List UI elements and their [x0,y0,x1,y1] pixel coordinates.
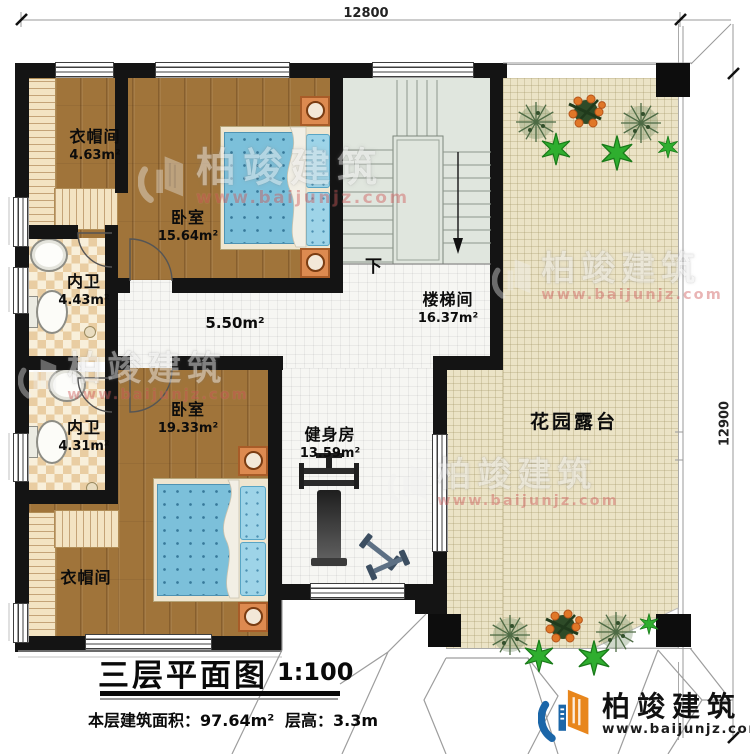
dimension-top: 12800 [326,6,406,21]
terrace-parapet-bottom [446,648,692,662]
nightstand [238,446,268,476]
wall [268,360,282,650]
wall [172,356,283,370]
dimension-right: 12900 [718,396,733,452]
room-label-stairwell: 楼梯间 16.37m² [418,290,478,328]
wardrobe-closet-bottom-left [28,512,56,638]
nightstand [238,602,268,632]
room-label-gym: 健身房 13.59m² [300,425,360,463]
floor-terrace [503,78,678,648]
wall [330,63,343,293]
weight-bench-icon [317,490,341,560]
wall [490,63,503,369]
window [372,62,474,78]
room-label-bath-top: 内卫 4.43m² [58,272,109,310]
title-underline-thin [100,698,338,700]
room-label-hall-area: 5.50m² [205,314,264,334]
floor-height-text: 层高：3.3m [285,707,378,731]
company-logo-icon [538,686,594,742]
company-website: www.baijunjz.com [602,723,750,737]
company-name: 柏竣建筑 [602,691,750,723]
weight-bench-icon [354,463,359,489]
nightstand [300,248,330,278]
window [85,634,212,650]
room-label-terrace: 花园露台 [530,410,618,435]
room-label-bedroom-bottom: 卧室 19.33m² [158,400,218,438]
floor-drain-icon [84,326,96,338]
floor-plan: 柏竣建筑 www.baijunjz.com 柏竣建筑 www.baijunjz.… [0,0,750,754]
floor-stairwell [343,78,491,264]
window [13,267,29,314]
wall [15,356,78,370]
wardrobe-closet-top-left [28,78,56,230]
room-label-closet-top: 衣帽间 4.63m² [69,127,120,165]
company-logo: 柏竣建筑 www.baijunjz.com [538,686,750,742]
window [13,197,29,247]
wall [112,356,130,370]
room-label-bedroom-top: 卧室 15.64m² [158,208,218,246]
bed-bottom-mattress [157,484,235,596]
weight-bench-icon [311,558,347,566]
terrace-door-window [432,434,448,552]
weight-bench-icon [299,463,304,489]
title-underline [100,691,340,696]
wardrobe-closet-top-bottom [54,188,118,230]
bed-bottom-pillow [240,542,266,596]
wall [172,278,343,293]
wall [433,550,447,600]
stairs-direction-label: 下 [365,256,383,278]
bed-top-pillow [306,134,330,188]
terrace-parapet-right [678,24,734,740]
window [55,62,114,78]
page-title: 三层平面图 [98,650,268,695]
wardrobe-closet-bottom-top [54,510,119,548]
lamp-icon [306,101,325,120]
wall [15,490,117,504]
window [310,583,405,599]
window [155,62,290,78]
wall [115,278,130,293]
window [13,433,29,482]
weight-bench-icon [302,468,356,474]
lamp-icon [306,253,325,272]
lamp-icon [244,451,263,470]
bed-top-pillow [306,192,330,246]
lamp-icon [244,607,263,626]
floor-area-text: 本层建筑面积：97.64m² [88,707,274,731]
drawing-scale: 1:100 [277,658,353,686]
wall [433,370,447,434]
room-label-closet-bottom: 衣帽间 [60,568,111,589]
bed-bottom-pillow [240,486,266,540]
window [13,603,29,643]
nightstand [300,96,330,126]
floor-terrace-side [446,369,503,648]
bed-top-mattress [224,132,306,244]
weight-bench-icon [302,480,356,486]
sink-icon [48,368,86,402]
sink-icon [30,238,68,272]
room-label-bath-bottom: 内卫 4.31m² [58,418,109,456]
wall [433,356,503,370]
